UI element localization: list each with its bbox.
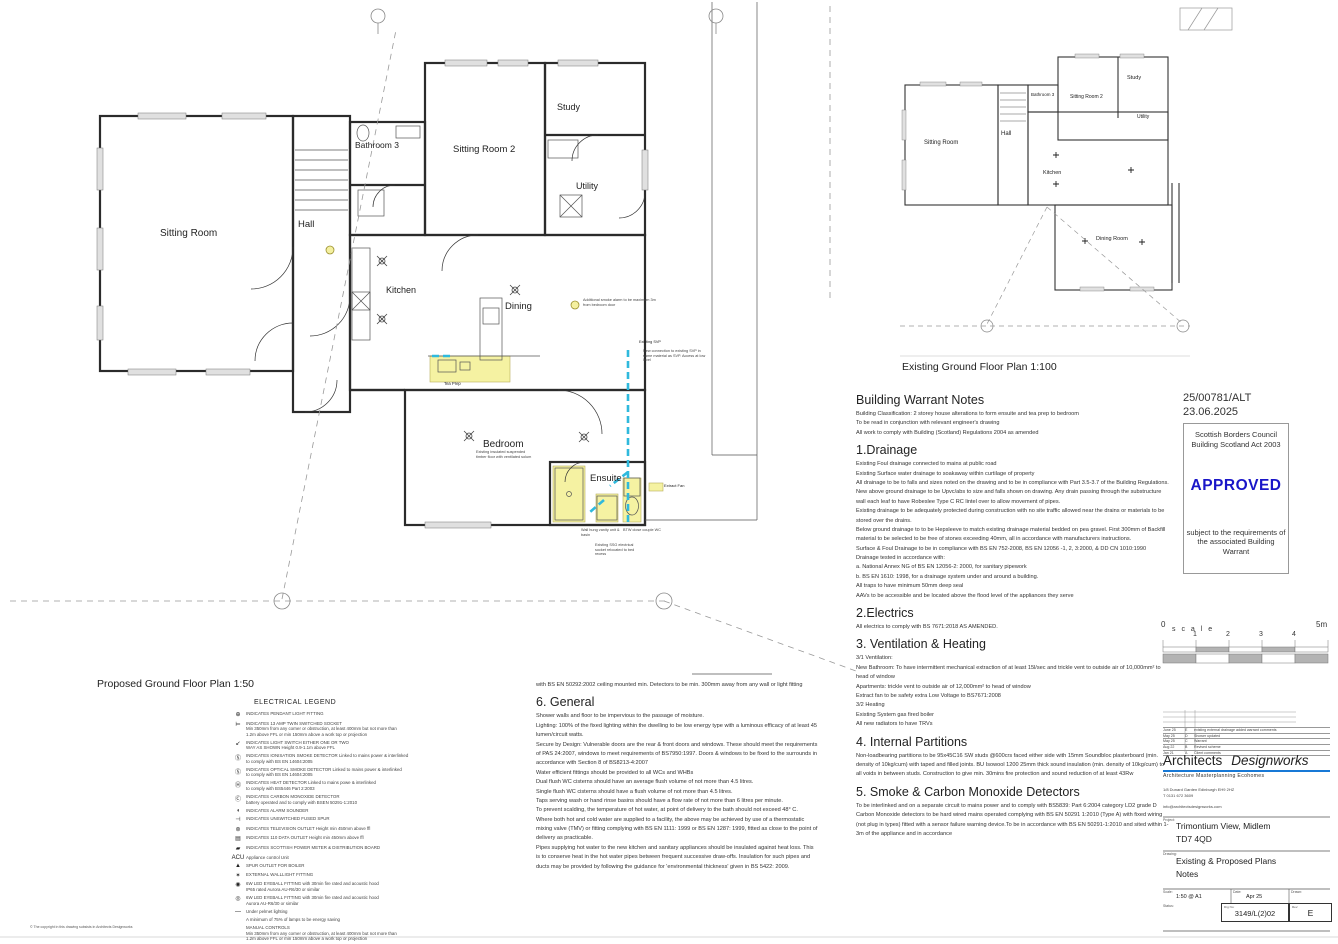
existing-room-label-hall: Hall — [1001, 131, 1011, 138]
note-paragraph: Drainage tested in accordance with: — [856, 554, 1169, 563]
legend-item: Ⓢ INDICATES OPTICAL SMOKE DETECTOR Linke… — [230, 767, 432, 778]
existing-light-symbols — [1053, 152, 1145, 245]
revision-description: Shower updated — [1194, 734, 1330, 739]
section-general: Shower walls and floor to be impervious … — [536, 712, 818, 872]
room-label-dining: Dining — [505, 302, 532, 313]
existing-room-label-bathroom3: Bathroom 3 — [1031, 92, 1054, 97]
revision-description: Warrant — [1194, 739, 1330, 744]
approved-text: APPROVED — [1184, 477, 1288, 495]
room-label-bathroom3: Bathroom 3 — [355, 141, 399, 151]
proposed-detail — [295, 2, 772, 674]
legend-item-text: MANUAL CONTROLS Min 350mm from any corne… — [246, 925, 432, 942]
legend-items: ⊕ INDICATES PENDANT LIGHT FITTING ⊨ INDI… — [230, 711, 432, 942]
legend-item: ↙ INDICATES LIGHT SWITCH EITHER ONE OR T… — [230, 740, 432, 751]
section-smoke-co-detectors: To be interlinked and on a separate circ… — [856, 802, 1169, 840]
existing-plan-caption: Existing Ground Floor Plan 1:100 — [902, 361, 1057, 373]
room-label-kitchen: Kitchen — [386, 285, 416, 295]
legend-item-text: 6W LED EYEBALL FITTING with 30min fire r… — [246, 895, 432, 906]
legend-symbol-icon: ▰ — [230, 845, 246, 852]
legend-item-text: INDICATES UNSWITCHED FUSED SPUR — [246, 816, 432, 823]
legend-item: ⊣ INDICATES UNSWITCHED FUSED SPUR — [230, 816, 432, 823]
legend-symbol-icon: ⊚ — [230, 826, 246, 833]
scalebar-max: 5m — [1316, 620, 1327, 629]
note-paragraph: To be read in conjunction with relevant … — [856, 419, 1169, 428]
legend-item: ◖ INDICATES ALARM SOUNDER — [230, 808, 432, 814]
legend-item-text: INDICATES 13 AMP TWIN SWITCHED SOCKET Mi… — [246, 721, 432, 738]
revision-row: June 25 E existing external drainage add… — [1163, 727, 1330, 733]
proposed-plan-caption: Proposed Ground Floor Plan 1:50 — [97, 678, 254, 690]
annotation-smoke-alarm: Additional smoke alarm to be maximum 3m … — [583, 298, 657, 307]
annotation-existing-svp: Existing SVP — [639, 340, 661, 344]
legend-item-text: Under pelmet lighting — [246, 909, 432, 915]
section-heading-ventilation-heating: 3. Ventilation & Heating — [856, 637, 1169, 651]
annotation-svp-connection: New connection to existing SVP in same m… — [643, 349, 707, 363]
annotation-tea-prep: Tea Prep — [444, 382, 461, 387]
section-electrics: All electrics to comply with BS 7671:201… — [856, 623, 1169, 632]
room-label-sitting-room2: Sitting Room 2 — [453, 145, 515, 156]
firm-logo: ArchitectsDesignworks — [1163, 753, 1309, 769]
note-paragraph: Where both hot and cold water are suppli… — [536, 816, 818, 844]
note-paragraph: 3/1 Ventilation: — [856, 654, 1169, 663]
warrant-heading: Building Warrant Notes — [856, 393, 1169, 407]
existing-room-label-kitchen: Kitchen — [1043, 170, 1061, 176]
legend-symbol-icon: ◎ — [230, 895, 246, 906]
project-name-line1: Trimontium View, Midlem — [1176, 822, 1270, 832]
legend-title: ELECTRICAL LEGEND — [254, 699, 432, 706]
firm-name-2: Designworks — [1231, 753, 1308, 768]
revision-letter: B — [1185, 745, 1194, 750]
legend-item: ✶ EXTERNAL WALLLIGHT FITTING — [230, 872, 432, 879]
legend-item-text: INDICATES 110 DATA OUTLET Height min 450… — [246, 835, 432, 842]
room-label-ensuite: Ensuite — [590, 474, 622, 485]
proposed-walls — [100, 63, 645, 525]
note-paragraph: Water efficient fittings should be provi… — [536, 769, 818, 778]
legend-item-text: INDICATES IONISATION SMOKE DETECTOR Link… — [246, 753, 432, 764]
drawing-title-line1: Existing & Proposed Plans — [1176, 857, 1276, 867]
legend-symbol-icon — [230, 917, 246, 923]
drawing-sheet: Sitting Room Hall Bathroom 3 Sitting Roo… — [0, 0, 1338, 944]
section-drainage: Existing Foul drainage connected to main… — [856, 460, 1169, 601]
note-paragraph: All drainage to be to falls and sizes no… — [856, 479, 1169, 507]
revision-row: May 25 C Warrant — [1163, 738, 1330, 744]
revision-date: June 25 — [1163, 728, 1185, 733]
note-paragraph: Building Classification: 2 storey house … — [856, 410, 1169, 419]
legend-symbol-icon: ◖ — [230, 808, 246, 814]
legend-item: ▲ SPUR OUTLET FOR BOILER — [230, 863, 432, 869]
note-paragraph: Surface & Foul Drainage to be in complia… — [856, 545, 1169, 554]
existing-room-label-study: Study — [1127, 75, 1141, 81]
annotation-vanity: Wall hung vanity unit & basin — [581, 528, 623, 537]
status-field-label: Status: — [1163, 904, 1174, 908]
room-label-study: Study — [557, 102, 580, 112]
smoke-detector-symbols — [326, 246, 579, 309]
proposed-windows — [97, 60, 648, 528]
drawing-number-value: 3149/L(2)02 — [1222, 909, 1288, 918]
legend-item: ▤ INDICATES 110 DATA OUTLET Height min 4… — [230, 835, 432, 842]
scale-value: 1:50 @ A1 — [1176, 894, 1202, 900]
legend-item-text: SPUR OUTLET FOR BOILER — [246, 863, 432, 869]
legend-symbol-icon: ⊨ — [230, 721, 246, 738]
note-paragraph: Secure by Design: Vulnerable doors are t… — [536, 741, 818, 769]
scalebar-tick-1: 1 — [1193, 631, 1197, 638]
revision-letter: D — [1185, 734, 1194, 739]
note-paragraph: All new radiators to have TRVs — [856, 720, 1169, 729]
note-paragraph: Existing Surface water drainage to soaka… — [856, 470, 1169, 479]
revision-box: Rev: E — [1289, 903, 1332, 922]
note-paragraph: Extract fan to be safety extra Low Volta… — [856, 692, 1169, 701]
note-paragraph: Existing System gas fired boiler — [856, 711, 1169, 720]
existing-room-label-dining-room: Dining Room — [1096, 236, 1128, 242]
date-field-label: Date: — [1233, 890, 1241, 894]
legend-item-text: INDICATES LIGHT SWITCH EITHER ONE OR TWO… — [246, 740, 432, 751]
note-paragraph: To be interlinked and on a separate circ… — [856, 802, 1169, 811]
legend-symbol-icon — [230, 925, 246, 942]
legend-item-text: 6W LED EYEBALL FITTING with 30min fire r… — [246, 881, 432, 892]
annotation-extract-fan: Extract Fan — [664, 484, 684, 489]
warrant-date: 23.06.2025 — [1183, 406, 1238, 419]
legend-item-text: INDICATES CARBON MONOXIDE DETECTOR batte… — [246, 794, 432, 805]
site-boundary — [10, 6, 856, 671]
note-paragraph: Non-loadbearing partitions to be 95x45C1… — [856, 752, 1169, 780]
revision-row: May 25 D Shower updated — [1163, 733, 1330, 739]
revision-letter: E — [1185, 728, 1194, 733]
warrant-intro: Building Classification: 2 storey house … — [856, 410, 1169, 438]
legend-item: Ⓒ INDICATES CARBON MONOXIDE DETECTOR bat… — [230, 794, 432, 805]
revision-box-value: E — [1290, 908, 1331, 918]
legend-item-text: INDICATES SCOTTISH POWER METER & DISTRIB… — [246, 845, 432, 852]
room-label-hall: Hall — [298, 220, 314, 231]
note-paragraph: Carbon Monoxide detectors to be hard wir… — [856, 811, 1169, 839]
room-label-utility: Utility — [576, 181, 598, 191]
brand-accent-rule — [1163, 770, 1330, 772]
note-paragraph: Lighting: 100% of the fixed lighting wit… — [536, 722, 818, 741]
date-value: Apr 25 — [1246, 894, 1262, 900]
legend-item-text: INDICATES OPTICAL SMOKE DETECTOR Linked … — [246, 767, 432, 778]
section-heading-drainage: 1.Drainage — [856, 443, 1169, 457]
note-paragraph: AAVs to be accessible and be located abo… — [856, 592, 1169, 601]
scalebar-zero: 0 — [1161, 620, 1165, 629]
legend-item: ACU Appliance control Unit — [230, 855, 432, 861]
legend-item-text: Appliance control Unit — [246, 855, 432, 861]
section-heading-internal-partitions: 4. Internal Partitions — [856, 735, 1169, 749]
legend-item: ⊕ INDICATES PENDANT LIGHT FITTING — [230, 711, 432, 718]
existing-boundary — [900, 207, 1190, 326]
legend-symbol-icon: ⊕ — [230, 711, 246, 718]
legend-symbol-icon: ✶ — [230, 872, 246, 879]
legend-item: MANUAL CONTROLS Min 350mm from any corne… — [230, 925, 432, 942]
firm-email: info@architectsdesignworks.com — [1163, 805, 1222, 810]
legend-item: ◉ 6W LED EYEBALL FITTING with 30min fire… — [230, 881, 432, 892]
note-paragraph: All traps to have minimum 50mm deep seal — [856, 582, 1169, 591]
existing-markers — [900, 320, 1190, 356]
legend-item: ⊨ INDICATES 13 AMP TWIN SWITCHED SOCKET … — [230, 721, 432, 738]
firm-name-1: Architects — [1163, 753, 1222, 768]
room-label-sitting-room: Sitting Room — [160, 228, 217, 240]
note-paragraph: Taps serving wash or hand rinse basins s… — [536, 797, 818, 806]
room-label-bedroom: Bedroom — [483, 439, 524, 451]
legend-symbol-icon: Ⓢ — [230, 753, 246, 764]
corner-hatch — [1180, 8, 1232, 30]
section-heading-electrics: 2.Electrics — [856, 606, 1169, 620]
revision-row: Aug 22 B Revised scheme — [1163, 744, 1330, 750]
scale-field-label: Scale: — [1163, 890, 1173, 894]
note-paragraph: b. BS EN 1610: 1998, for a drainage syst… — [856, 573, 1169, 582]
note-paragraph: a. National Annex NG of BS EN 12056-2: 2… — [856, 563, 1169, 572]
legend-item: ◎ 6W LED EYEBALL FITTING with 30min fire… — [230, 895, 432, 906]
legend-item-text: INDICATES ALARM SOUNDER — [246, 808, 432, 814]
existing-room-label-sitting-room: Sitting Room — [924, 140, 958, 147]
firm-address: 1/8 Dunard Garden Edinburgh EH9 2HZ — [1163, 788, 1234, 793]
legend-symbol-icon: ▲ — [230, 863, 246, 869]
annotation-socket: Existing SSG electrical socket relocated… — [595, 543, 643, 557]
stamp-footer: subject to the requirements of the assoc… — [1184, 528, 1288, 557]
revision-date: May 25 — [1163, 734, 1185, 739]
building-warrant-notes: Building Warrant Notes Building Classifi… — [856, 393, 1169, 839]
existing-detail — [1000, 93, 1026, 121]
legend-item-text: INDICATES HEAT DETECTOR Linked to mains … — [246, 780, 432, 791]
scalebar-tick-4: 4 — [1292, 631, 1296, 638]
firm-phone: T 0131 672 3609 — [1163, 794, 1193, 799]
note-paragraph: New Bathroom: To have intermittent mecha… — [856, 664, 1169, 683]
existing-room-label-utility: Utility — [1137, 115, 1149, 121]
revision-table: June 25 E existing external drainage add… — [1163, 727, 1330, 756]
note-paragraph: Pipes supplying hot water to the new kit… — [536, 844, 818, 872]
note-paragraph: Single flush WC cisterns should have a f… — [536, 788, 818, 797]
note-paragraph: Existing drainage to be adequately prote… — [856, 507, 1169, 526]
drawn-field-label: Drawn: — [1291, 890, 1302, 894]
legend-item: A minimum of 75% of lamps to be energy s… — [230, 917, 432, 923]
note-paragraph: To prevent scalding, the temperature of … — [536, 806, 818, 815]
note-paragraph: 3/2 Heating — [856, 701, 1169, 710]
legend-item-text: INDICATES TELEVISION OUTLET Height min 4… — [246, 826, 432, 833]
section-heading-general: 6. General — [536, 695, 818, 709]
revision-letter: C — [1185, 739, 1194, 744]
project-name-line2: TD7 4QD — [1176, 835, 1212, 845]
legend-symbol-icon: ▤ — [230, 835, 246, 842]
warrant-reference: 25/00781/ALT — [1183, 392, 1251, 405]
note-paragraph: Apartments: trickle vent to outside air … — [856, 683, 1169, 692]
annotation-bedroom-floor: Existing insulated suspended timber floo… — [476, 450, 534, 459]
legend-symbol-icon: ◉ — [230, 881, 246, 892]
legend-symbol-icon: — — [230, 909, 246, 915]
legend-item: Ⓢ INDICATES IONISATION SMOKE DETECTOR Li… — [230, 753, 432, 764]
note-paragraph: Existing Foul drainage connected to main… — [856, 460, 1169, 469]
electrical-legend: ELECTRICAL LEGEND ⊕ INDICATES PENDANT LI… — [230, 699, 432, 944]
drawing-number-box: Drg No: 3149/L(2)02 — [1221, 903, 1289, 922]
stamp-council-line1: Scottish Borders Council — [1184, 430, 1288, 440]
note-paragraph: All work to comply with Building (Scotla… — [856, 429, 1169, 438]
project-field-label: Project: — [1163, 818, 1175, 822]
approval-stamp: Scottish Borders Council Building Scotla… — [1183, 423, 1289, 574]
scalebar-tick-3: 3 — [1259, 631, 1263, 638]
legend-item: ⊚ INDICATES TELEVISION OUTLET Height min… — [230, 826, 432, 833]
general-notes-column: with BS EN 50292:2002 ceiling mounted mi… — [536, 681, 818, 872]
scale-bar — [1163, 640, 1328, 663]
legend-symbol-icon: ACU — [230, 855, 246, 861]
legend-symbol-icon: Ⓢ — [230, 767, 246, 778]
setting-out-markers — [274, 9, 723, 609]
legend-item-text: EXTERNAL WALLLIGHT FITTING — [246, 872, 432, 879]
revision-description: Revised scheme — [1194, 745, 1330, 750]
legend-item-text: A minimum of 75% of lamps to be energy s… — [246, 917, 432, 923]
drawing-title-line2: Notes — [1176, 870, 1198, 880]
revision-date: Aug 22 — [1163, 745, 1185, 750]
section-internal-partitions: Non-loadbearing partitions to be 95x45C1… — [856, 752, 1169, 780]
revision-date: May 25 — [1163, 739, 1185, 744]
legend-symbol-icon: Ⓒ — [230, 794, 246, 805]
legend-symbol-icon: ⊣ — [230, 816, 246, 823]
copyright-note: © The copyright in this drawing subsists… — [30, 925, 133, 929]
stamp-council-line2: Building Scotland Act 2003 — [1184, 440, 1288, 450]
smoke-notes-continuation: with BS EN 50292:2002 ceiling mounted mi… — [536, 681, 818, 690]
firm-tagline: Architecture Masterplanning Ecohomes — [1163, 774, 1264, 780]
annotation-wc: BTW close couple WC — [623, 528, 661, 533]
note-paragraph: Shower walls and floor to be impervious … — [536, 712, 818, 721]
note-paragraph: with BS EN 50292:2002 ceiling mounted mi… — [536, 681, 818, 690]
existing-room-label-sitting-room2: Sitting Room 2 — [1070, 95, 1103, 101]
section-heading-smoke-co-detectors: 5. Smoke & Carbon Monoxide Detectors — [856, 785, 1169, 799]
section-ventilation-heating: 3/1 Ventilation:New Bathroom: To have in… — [856, 654, 1169, 729]
pendant-light-symbols — [377, 256, 589, 442]
legend-item: — Under pelmet lighting — [230, 909, 432, 915]
note-paragraph: All electrics to comply with BS 7671:201… — [856, 623, 1169, 632]
drawing-field-label: Drawing: — [1163, 852, 1177, 856]
legend-item: ▰ INDICATES SCOTTISH POWER METER & DISTR… — [230, 845, 432, 852]
legend-symbol-icon: ↙ — [230, 740, 246, 751]
legend-item: Ⓗ INDICATES HEAT DETECTOR Linked to main… — [230, 780, 432, 791]
note-paragraph: Below ground drainage to to be Hepsleeve… — [856, 526, 1169, 545]
scalebar-tick-2: 2 — [1226, 631, 1230, 638]
legend-item-text: INDICATES PENDANT LIGHT FITTING — [246, 711, 432, 718]
note-paragraph: Dual flush WC cisterns should have an av… — [536, 778, 818, 787]
legend-symbol-icon: Ⓗ — [230, 780, 246, 791]
revision-description: existing external drainage added warrant… — [1194, 728, 1330, 733]
